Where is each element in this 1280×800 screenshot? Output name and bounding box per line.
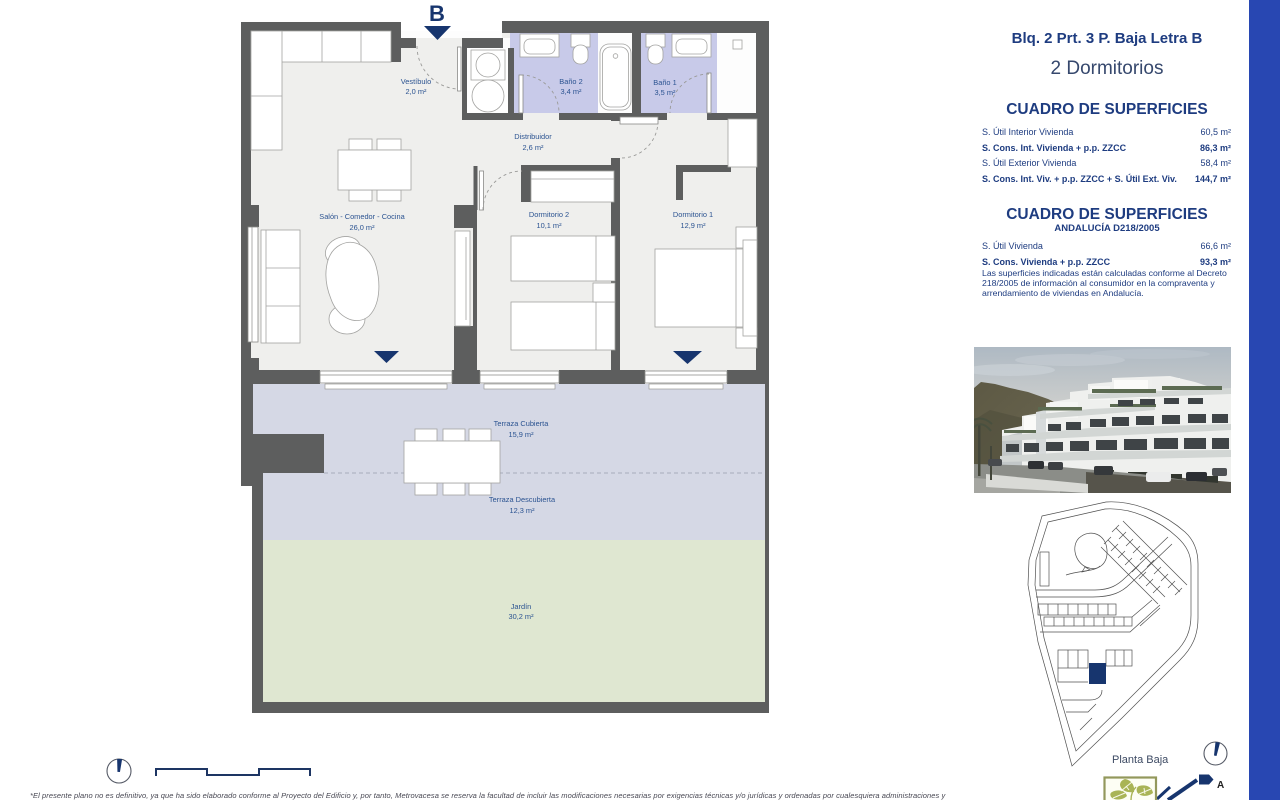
svg-text:Dormitorio 1: Dormitorio 1 (673, 210, 713, 219)
svg-text:A: A (1217, 780, 1224, 791)
svg-text:Baño 1: Baño 1 (653, 78, 676, 87)
svg-text:Vestíbulo: Vestíbulo (401, 77, 431, 86)
svg-text:15,9 m²: 15,9 m² (508, 430, 534, 439)
svg-text:12,3 m²: 12,3 m² (509, 506, 535, 515)
svg-text:2,6 m²: 2,6 m² (523, 143, 544, 152)
svg-text:Distribuidor: Distribuidor (514, 132, 552, 141)
svg-text:12,9 m²: 12,9 m² (680, 221, 706, 230)
svg-text:Salón - Comedor - Cocina: Salón - Comedor - Cocina (319, 212, 405, 221)
svg-text:30,2 m²: 30,2 m² (508, 612, 534, 621)
svg-text:3,4 m²: 3,4 m² (561, 87, 582, 96)
svg-text:Terraza Descubierta: Terraza Descubierta (489, 495, 556, 504)
svg-text:B: B (429, 1, 445, 26)
svg-text:26,0 m²: 26,0 m² (349, 223, 375, 232)
svg-text:Jardín: Jardín (511, 602, 532, 611)
svg-text:Baño 2: Baño 2 (559, 77, 582, 86)
svg-text:Terraza Cubierta: Terraza Cubierta (494, 419, 550, 428)
svg-text:Dormitorio 2: Dormitorio 2 (529, 210, 569, 219)
svg-text:3,5 m²: 3,5 m² (655, 88, 676, 97)
svg-text:2,0 m²: 2,0 m² (406, 87, 427, 96)
svg-text:10,1 m²: 10,1 m² (536, 221, 562, 230)
